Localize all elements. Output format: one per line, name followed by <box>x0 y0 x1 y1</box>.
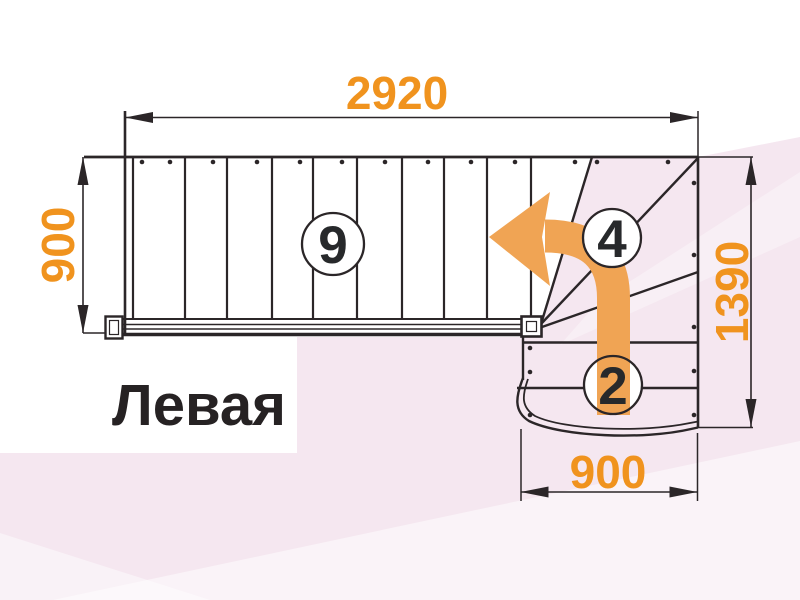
balloon-2-value: 2 <box>598 357 627 416</box>
staircase-plan-svg: 9 4 2 2920 900 1390 900 Левая <box>0 0 800 600</box>
balloon-9-value: 9 <box>318 216 347 275</box>
left-newel-post <box>106 317 123 339</box>
plan-title: Левая <box>112 373 286 438</box>
balloon-winder: 4 <box>583 209 641 269</box>
dimension-bottom-value: 900 <box>570 446 647 498</box>
pivot-newel-post <box>522 317 542 337</box>
balloon-4-value: 4 <box>597 210 627 269</box>
staircase-plan-page: 9 4 2 2920 900 1390 900 Левая <box>0 0 800 600</box>
dimension-left-value: 900 <box>32 207 84 284</box>
balloon-upper-flight: 9 <box>302 213 364 275</box>
dimension-top-value: 2920 <box>346 67 448 119</box>
dimension-right-value: 1390 <box>706 241 758 343</box>
